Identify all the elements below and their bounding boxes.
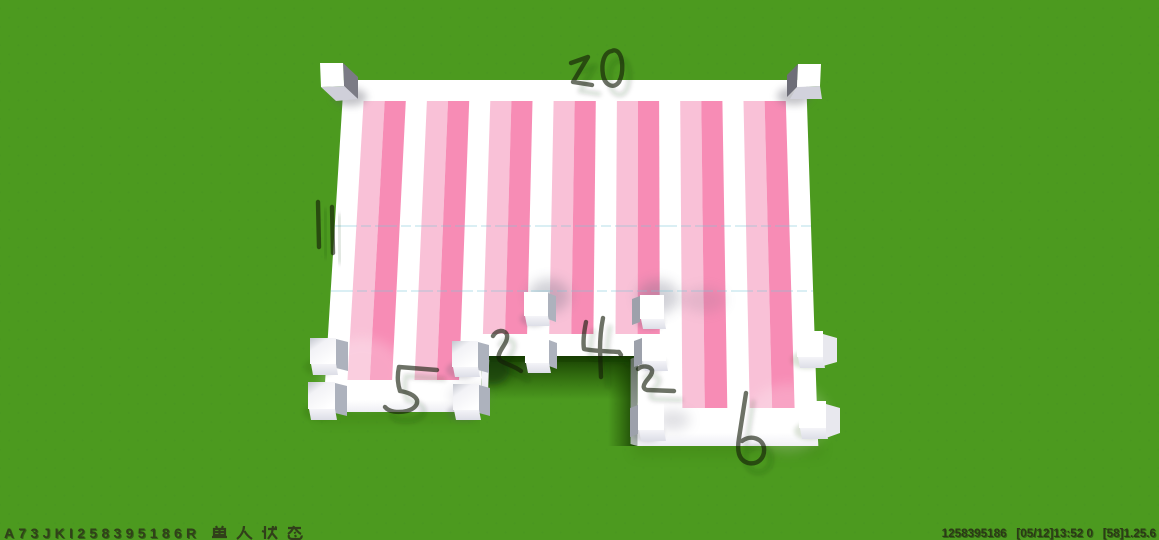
- svg-text:1258395186 [05/12]13:52 0: 1258395186 [05/12]13:52 0 [58]1.25.6: [942, 527, 1157, 540]
- svg-text:A73JKI258395186R: A73JKI258395186R: [4, 525, 200, 540]
